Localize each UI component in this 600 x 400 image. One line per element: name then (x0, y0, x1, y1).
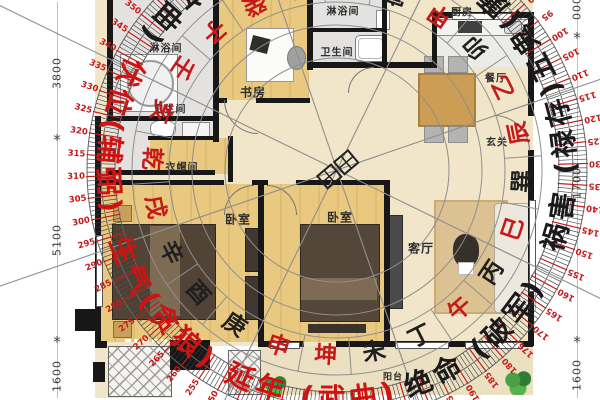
minor-tick (558, 257, 570, 262)
minor-tick (545, 88, 557, 93)
nightstand (113, 205, 132, 222)
minor-tick (546, 92, 558, 96)
major-tick (556, 203, 586, 207)
wall-pillar (75, 309, 96, 331)
minor-tick (206, 372, 213, 383)
degree-label: 120 (583, 111, 600, 124)
minor-tick (537, 266, 549, 272)
minor-tick (556, 131, 569, 133)
minor-tick (551, 272, 563, 278)
minor-tick (568, 116, 581, 119)
minor-tick (541, 290, 552, 297)
room-label: 卧室 (327, 209, 353, 226)
minor-tick (221, 363, 227, 374)
degree-label: 250 (204, 389, 221, 400)
minor-tick (568, 221, 581, 224)
minor-tick (552, 111, 565, 114)
minor-tick (536, 269, 548, 275)
minor-tick (214, 359, 221, 370)
major-tick (557, 142, 587, 145)
minor-tick (539, 294, 550, 301)
dimension-separator: * (53, 131, 61, 149)
minor-tick (547, 55, 559, 61)
bed-right-blanket (301, 278, 377, 300)
minor-tick (554, 70, 566, 75)
minor-tick (559, 82, 571, 87)
degree-label: 145 (581, 224, 600, 238)
minor-tick (553, 115, 566, 118)
minor-tick (559, 160, 572, 161)
minor-tick (203, 370, 210, 381)
degree-label: 300 (72, 215, 91, 228)
room-label: 衣帽间 (166, 159, 199, 174)
minor-tick (550, 233, 562, 237)
minor-tick (563, 95, 575, 99)
degree-label: 160 (556, 286, 576, 303)
shaft-hatch (228, 350, 261, 395)
minor-tick (551, 229, 564, 232)
kitchen-sink (504, 21, 522, 34)
degree-label: 125 (587, 134, 600, 146)
minor-tick (558, 195, 571, 196)
minor-tick (555, 214, 568, 217)
minor-tick (218, 361, 225, 372)
room-label: 阳台 (383, 370, 403, 383)
dimension-separator: * (573, 29, 581, 47)
room-label: 淋浴间 (327, 3, 360, 18)
tv-unit (388, 215, 403, 309)
minor-tick (549, 99, 561, 103)
window (529, 200, 536, 292)
bathtub-inner (358, 38, 383, 59)
wall-segment (310, 28, 385, 32)
dining-chair (424, 126, 444, 143)
minor-tick (557, 135, 570, 137)
degree-label: 170 (531, 323, 551, 342)
minor-tick (560, 87, 572, 91)
fengshui-floorplan-chart: 淋浴间卫生间书房衣帽间卧室卧室淋浴间卫生间厨房餐厅玄关客厅阳台 05101520… (0, 0, 600, 400)
major-tick (543, 78, 571, 89)
minor-tick (559, 156, 572, 157)
degree-label: 320 (69, 125, 88, 138)
dining-table (418, 73, 476, 127)
minor-tick (214, 376, 220, 387)
minor-tick (556, 261, 568, 266)
window (96, 235, 103, 307)
minor-tick (573, 150, 586, 151)
room-label: 餐厅 (485, 70, 507, 85)
bed-left-blanket (150, 226, 180, 316)
window (270, 342, 300, 349)
degree-label: 100 (549, 25, 569, 43)
room-label: 厨房 (451, 4, 473, 19)
minor-tick (558, 191, 571, 192)
major-tick (540, 258, 568, 270)
wall-segment (528, 12, 534, 116)
minor-tick (558, 187, 571, 188)
minor-tick (557, 139, 570, 141)
minor-tick (553, 66, 565, 71)
minor-tick (537, 297, 548, 304)
wall-pillar (95, 341, 107, 348)
minor-tick (558, 152, 571, 153)
degree-label: 315 (67, 149, 85, 160)
dining-chair (448, 126, 468, 143)
minor-tick (551, 107, 564, 110)
nightstand (113, 321, 132, 338)
degree-label: 140 (586, 202, 600, 215)
minor-tick (554, 119, 567, 122)
minor-tick (564, 237, 576, 241)
degree-label: 115 (577, 89, 597, 104)
minor-tick (544, 251, 556, 256)
star-label: 祸害 (禄存) (531, 73, 582, 256)
wall-segment (213, 0, 219, 142)
room-label: 玄关 (486, 134, 508, 149)
dimension-label: 1600 (51, 360, 64, 392)
minor-tick (555, 210, 568, 212)
minor-tick (537, 69, 549, 75)
room-label: 卧室 (225, 211, 251, 228)
window (395, 342, 449, 349)
minor-tick (551, 62, 563, 68)
dimension-label: 1600 (571, 359, 584, 391)
minor-tick (412, 395, 416, 400)
minor-tick (572, 137, 585, 139)
room-label: 卫生间 (321, 44, 354, 59)
minor-tick (573, 146, 586, 147)
minor-tick (542, 80, 554, 85)
major-tick (554, 120, 583, 126)
minor-tick (543, 287, 554, 293)
minor-tick (552, 226, 565, 229)
room-label: 客厅 (408, 240, 434, 257)
minor-tick (563, 241, 575, 245)
minor-tick (574, 155, 587, 156)
degree-label: 255 (184, 377, 202, 397)
stove (458, 21, 482, 33)
minor-tick (545, 51, 556, 57)
wall-segment (95, 180, 224, 185)
major-tick (549, 99, 578, 108)
minor-tick (541, 76, 553, 81)
degree-label: 130 (589, 158, 600, 168)
wall-segment (258, 180, 264, 346)
minor-tick (558, 147, 571, 148)
wall-segment (228, 136, 233, 182)
dimension-separator: * (573, 333, 581, 351)
degree-label: 305 (68, 194, 87, 206)
minor-tick (560, 249, 572, 253)
room-label: 淋浴间 (150, 40, 183, 55)
room-label: 书房 (240, 84, 266, 101)
wall-pillar (170, 340, 210, 370)
minor-tick (545, 248, 557, 253)
minor-tick (556, 74, 568, 79)
minor-tick (535, 32, 546, 39)
bed-bench (308, 324, 366, 333)
degree-label: 165 (544, 305, 564, 323)
wall-segment (382, 0, 387, 66)
major-tick (535, 58, 562, 71)
major-tick (547, 240, 575, 250)
wall-segment (107, 170, 215, 175)
degree-label: 95 (539, 7, 555, 22)
minor-tick (562, 91, 574, 95)
plant (263, 375, 287, 397)
bay-window-hatch (108, 346, 172, 397)
minor-tick (546, 244, 558, 248)
minor-tick (549, 237, 561, 241)
dining-chair (448, 56, 468, 73)
degree-label: 295 (77, 237, 97, 252)
desk-chair (287, 46, 306, 70)
degree-label: 110 (570, 66, 590, 82)
wall-segment (148, 136, 214, 140)
minor-tick (542, 255, 554, 260)
minor-tick (222, 380, 228, 392)
minor-tick (211, 357, 218, 368)
minor-tick (539, 73, 551, 78)
paper (458, 262, 474, 275)
minor-tick (548, 95, 560, 99)
minor-tick (555, 127, 568, 129)
dimension-label: 1700 (571, 167, 584, 199)
window (465, 342, 523, 349)
dimension-label: 3800 (51, 57, 64, 89)
major-tick (558, 163, 588, 164)
wall-segment (107, 116, 215, 121)
minor-tick (557, 199, 570, 201)
wall-segment (384, 180, 390, 346)
wall-segment (296, 180, 390, 185)
plant (505, 370, 531, 395)
minor-tick (543, 47, 554, 53)
bed-right (300, 224, 380, 322)
minor-tick (210, 374, 217, 385)
dimension-label: 000 (571, 0, 584, 20)
minor-tick (559, 253, 571, 258)
minor-tick (556, 207, 569, 209)
minor-tick (547, 279, 559, 285)
minor-tick (572, 201, 585, 203)
minor-tick (534, 61, 546, 67)
wall-segment (336, 341, 390, 347)
room-label: 卫生间 (154, 101, 187, 116)
minor-tick (541, 43, 552, 50)
minor-tick (408, 396, 412, 400)
dimension-label: 5100 (51, 224, 64, 256)
wall-pillar (93, 362, 105, 382)
minor-tick (569, 217, 582, 220)
degree-label: 135 (588, 180, 600, 191)
degree-label: 310 (67, 172, 85, 182)
minor-tick (539, 262, 551, 267)
minor-tick (567, 112, 580, 115)
wall-segment (432, 12, 437, 68)
degree-label: 325 (73, 102, 93, 116)
minor-tick (537, 36, 548, 43)
wall-segment (107, 0, 113, 120)
minor-tick (574, 159, 587, 160)
minor-tick (549, 276, 561, 282)
wall-segment (307, 0, 313, 70)
minor-tick (553, 268, 565, 273)
dimension-separator: * (53, 333, 61, 351)
minor-tick (554, 218, 567, 221)
